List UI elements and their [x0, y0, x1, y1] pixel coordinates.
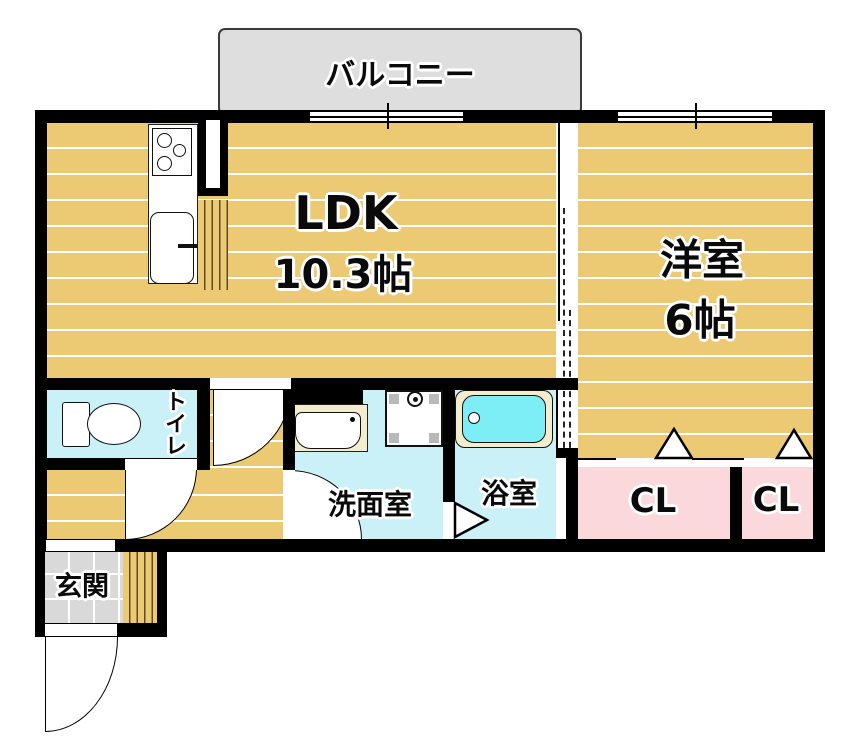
- bathroom-door-opening: [443, 502, 455, 539]
- washroom-door-opening: [283, 470, 295, 539]
- wall-wet-area-top: [283, 378, 578, 390]
- wall-closet-left: [566, 458, 578, 552]
- vanity-mirror-icon: [289, 390, 363, 404]
- balcony-label: バルコニー: [325, 50, 474, 94]
- wall-washroom-left: [283, 390, 295, 470]
- washer-faucet-icon: [407, 391, 423, 407]
- wall-bottom: [35, 539, 825, 552]
- wall-bathroom-left: [443, 390, 455, 502]
- kitchen-counter-strip: [198, 200, 228, 290]
- western-room-label: 洋室: [660, 227, 744, 288]
- bathroom-side-line: [556, 378, 558, 458]
- stove-burner-icon: [157, 156, 172, 171]
- closet-right-label: CL: [753, 480, 800, 520]
- closet-door-line-1: [578, 458, 616, 460]
- stove-burner-icon: [173, 144, 186, 157]
- wall-toilet-right: [197, 390, 210, 470]
- wall-closet-mid: [730, 458, 742, 552]
- stove-icon: [152, 128, 192, 176]
- western-room-size-label: 6帖: [664, 287, 735, 348]
- kitchen-stub-slot: [206, 120, 220, 188]
- wall-partition-foot: [556, 448, 578, 458]
- pan-corner: [389, 433, 399, 443]
- ldk-size-label: 10.3帖: [274, 242, 413, 300]
- entrance-step-strip: [123, 550, 157, 623]
- front-door-arc: [45, 637, 118, 732]
- sink-faucet-icon: [178, 244, 197, 248]
- sliding-door-track-dash-1: [563, 208, 565, 458]
- kitchen-sink-icon: [150, 212, 194, 284]
- bathroom-label: 浴室: [481, 472, 537, 512]
- toilet-tank-icon: [62, 402, 90, 447]
- pan-corner: [429, 394, 439, 404]
- washbasin-faucet-icon: [350, 417, 355, 422]
- front-door-opening: [45, 623, 117, 637]
- washbasin-icon: [289, 404, 368, 452]
- sliding-door-panel-line: [558, 123, 560, 321]
- closet-door-line-2: [692, 458, 744, 460]
- balcony: バルコニー: [218, 28, 582, 115]
- washroom-label: 洗面室: [328, 483, 412, 523]
- ldk-label: LDK: [294, 186, 397, 240]
- toilet-bowl-icon: [87, 403, 141, 445]
- pan-corner: [429, 433, 439, 443]
- wall-right: [813, 110, 825, 552]
- toilet-label: トイレ: [157, 390, 189, 456]
- entrance-label: 玄関: [55, 565, 109, 604]
- ldk-window: [310, 110, 463, 123]
- pan-corner: [389, 394, 399, 404]
- passage-door-opening: [210, 378, 291, 390]
- washing-machine-pan-icon: [385, 390, 443, 447]
- toilet-door-opening: [125, 458, 197, 470]
- wall-toilet-top: [35, 378, 210, 390]
- floor-plan: バルコニー: [0, 0, 857, 738]
- bathtub-drain-icon: [468, 412, 480, 424]
- ldk-window-center-tick: [387, 103, 389, 129]
- western-window-center-tick: [695, 103, 697, 129]
- western-room-window: [618, 110, 772, 123]
- wall-left: [35, 110, 47, 552]
- wall-toilet-bottom: [35, 458, 125, 470]
- stove-burner-icon: [157, 133, 172, 148]
- closet-left-label: CL: [630, 481, 677, 521]
- entrance-step-opening: [46, 539, 115, 552]
